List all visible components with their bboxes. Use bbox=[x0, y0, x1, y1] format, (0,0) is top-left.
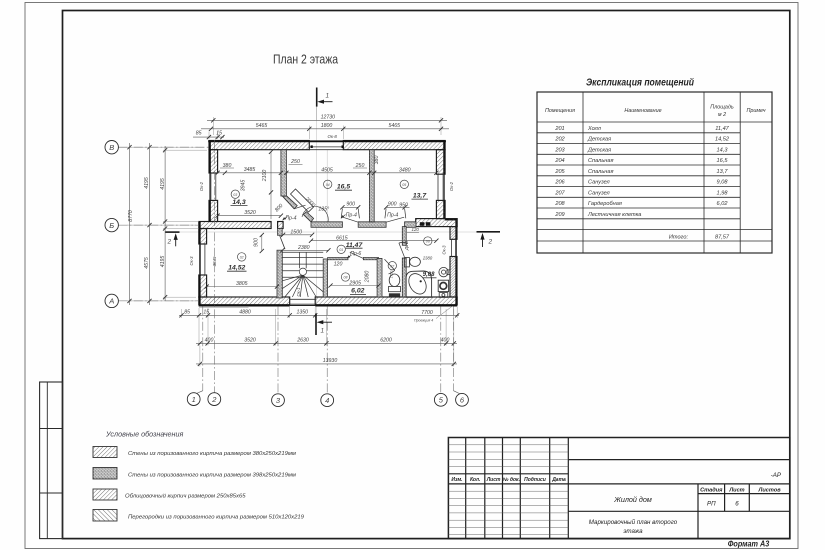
svg-text:План 2 этажа: План 2 этажа bbox=[273, 53, 338, 67]
svg-text:Жилой дом: Жилой дом bbox=[613, 495, 652, 504]
svg-text:В: В bbox=[109, 143, 114, 152]
svg-text:250: 250 bbox=[290, 159, 300, 165]
svg-text:209: 209 bbox=[554, 212, 564, 218]
svg-text:9,08: 9,08 bbox=[717, 180, 729, 186]
svg-text:120: 120 bbox=[334, 262, 343, 268]
svg-text:Спальная: Спальная bbox=[588, 169, 613, 175]
svg-text:400: 400 bbox=[205, 338, 214, 344]
svg-text:Санузел: Санузел bbox=[588, 190, 611, 196]
svg-text:Санузел: Санузел bbox=[588, 180, 611, 186]
svg-text:14,3: 14,3 bbox=[232, 199, 245, 206]
svg-text:Ок-1: Ок-1 bbox=[296, 288, 301, 297]
svg-text:Пр-6: Пр-6 bbox=[350, 251, 361, 257]
svg-text:РП: РП bbox=[707, 501, 716, 508]
svg-text:Подписи: Подписи bbox=[524, 477, 546, 483]
svg-text:02: 02 bbox=[240, 256, 244, 260]
svg-text:2380: 2380 bbox=[422, 255, 433, 260]
svg-text:14,52: 14,52 bbox=[715, 137, 730, 143]
svg-text:5465: 5465 bbox=[256, 123, 268, 129]
svg-text:4575: 4575 bbox=[144, 257, 150, 269]
svg-text:13930: 13930 bbox=[323, 358, 338, 364]
svg-text:135°: 135° bbox=[318, 207, 329, 213]
svg-text:3480: 3480 bbox=[399, 168, 411, 174]
svg-text:1800: 1800 bbox=[321, 123, 333, 129]
svg-text:01: 01 bbox=[339, 248, 343, 252]
svg-text:9,08: 9,08 bbox=[423, 272, 435, 278]
svg-text:3805: 3805 bbox=[236, 281, 248, 287]
svg-text:2905: 2905 bbox=[348, 280, 361, 286]
svg-text:Листов: Листов bbox=[758, 487, 782, 493]
svg-text:4505: 4505 bbox=[321, 168, 333, 174]
svg-text:Помещения: Помещения bbox=[545, 108, 575, 114]
svg-text:15: 15 bbox=[203, 309, 209, 315]
svg-text:06: 06 bbox=[426, 240, 430, 244]
svg-text:2630: 2630 bbox=[296, 338, 309, 344]
svg-text:Дата: Дата bbox=[551, 477, 566, 483]
svg-text:2: 2 bbox=[488, 239, 493, 246]
svg-text:16,5: 16,5 bbox=[717, 158, 729, 164]
svg-text:2: 2 bbox=[211, 395, 217, 404]
svg-text:Б: Б bbox=[109, 221, 114, 230]
svg-text:м 2: м 2 bbox=[718, 112, 726, 118]
svg-text:Условные обозначения: Условные обозначения bbox=[105, 430, 184, 439]
svg-text:5465: 5465 bbox=[389, 123, 401, 129]
svg-text:2: 2 bbox=[167, 239, 172, 246]
svg-text:Перегородки из поризованного к: Перегородки из поризованного кирпича раз… bbox=[128, 515, 305, 521]
svg-text:Стены из поризованного кирпича: Стены из поризованного кирпича размером … bbox=[128, 451, 296, 457]
svg-text:1: 1 bbox=[326, 93, 330, 100]
svg-text:208: 208 bbox=[554, 201, 565, 207]
svg-text:Стены из поризованного кирпича: Стены из поризованного кирпича размером … bbox=[128, 473, 296, 479]
svg-text:Ок-3: Ок-3 bbox=[189, 256, 194, 266]
svg-text:15: 15 bbox=[216, 131, 222, 137]
svg-text:4: 4 bbox=[325, 396, 329, 405]
svg-text:11,47: 11,47 bbox=[715, 126, 729, 132]
svg-text:12730: 12730 bbox=[321, 114, 336, 120]
svg-text:4195: 4195 bbox=[160, 256, 166, 268]
svg-text:1350: 1350 bbox=[297, 309, 309, 315]
svg-text:14,3: 14,3 bbox=[717, 147, 729, 153]
svg-text:Пр-4: Пр-4 bbox=[346, 212, 357, 218]
svg-text:6,02: 6,02 bbox=[717, 201, 729, 207]
svg-text:85: 85 bbox=[184, 309, 190, 315]
svg-text:202: 202 bbox=[554, 137, 565, 143]
svg-text:Экспликация помещений: Экспликация помещений bbox=[586, 78, 695, 89]
svg-text:900: 900 bbox=[388, 201, 397, 207]
svg-text:2100: 2100 bbox=[262, 170, 268, 183]
svg-text:Холл: Холл bbox=[587, 126, 602, 132]
svg-text:900: 900 bbox=[346, 201, 355, 207]
svg-text:85: 85 bbox=[196, 131, 202, 137]
svg-text:Лист: Лист bbox=[486, 477, 501, 483]
svg-text:1,98: 1,98 bbox=[717, 190, 729, 196]
svg-text:Ок-3: Ок-3 bbox=[441, 245, 446, 255]
svg-text:этажа: этажа bbox=[623, 528, 643, 535]
svg-text:Итого:: Итого: bbox=[669, 235, 689, 241]
svg-text:Лестничная клетка: Лестничная клетка bbox=[587, 212, 641, 218]
svg-text:Кол.: Кол. bbox=[470, 477, 480, 483]
svg-text:6,02: 6,02 bbox=[351, 288, 364, 295]
svg-text:205: 205 bbox=[554, 169, 565, 175]
svg-text:Облицовочный кирпич размером 2: Облицовочный кирпич размером 250х85х65 bbox=[125, 493, 246, 500]
svg-text:Дв-6: Дв-6 bbox=[404, 240, 409, 251]
svg-text:Ок-8: Ок-8 bbox=[327, 134, 337, 139]
svg-text:3520: 3520 bbox=[244, 210, 256, 216]
svg-text:7700: 7700 bbox=[421, 310, 433, 316]
svg-text:Маркировочный план второго: Маркировочный план второго bbox=[589, 519, 678, 526]
svg-text:14,52: 14,52 bbox=[228, 264, 245, 271]
svg-text:120: 120 bbox=[412, 227, 420, 232]
svg-text:4195: 4195 bbox=[160, 178, 166, 190]
svg-text:206: 206 bbox=[554, 180, 565, 186]
svg-text:Площадь: Площадь bbox=[710, 105, 734, 111]
svg-text:№ док.: № док. bbox=[503, 477, 520, 483]
svg-text:900: 900 bbox=[253, 238, 259, 247]
svg-text:Ок-2: Ок-2 bbox=[449, 181, 454, 191]
svg-text:380: 380 bbox=[374, 156, 380, 165]
svg-text:Гардеробная: Гардеробная bbox=[588, 201, 622, 207]
svg-text:8770: 8770 bbox=[128, 210, 134, 222]
svg-text:13,7: 13,7 bbox=[717, 169, 729, 175]
svg-text:Изм.: Изм. bbox=[451, 477, 462, 483]
svg-text:16,5: 16,5 bbox=[337, 183, 350, 190]
svg-text:Спальная: Спальная bbox=[588, 158, 613, 164]
svg-text:Наименование: Наименование bbox=[624, 108, 661, 114]
svg-text:-АР: -АР bbox=[771, 472, 782, 479]
svg-text:04: 04 bbox=[326, 183, 330, 187]
svg-text:Ок-2: Ок-2 bbox=[199, 181, 204, 191]
svg-text:6615: 6615 bbox=[336, 236, 348, 242]
svg-text:4195: 4195 bbox=[144, 177, 150, 189]
svg-text:207: 207 bbox=[554, 190, 565, 196]
svg-text:203: 203 bbox=[554, 147, 565, 153]
svg-text:11,47: 11,47 bbox=[346, 242, 364, 249]
svg-text:3945: 3945 bbox=[241, 180, 247, 192]
svg-text:А: А bbox=[108, 297, 114, 306]
svg-text:950: 950 bbox=[399, 202, 408, 208]
svg-text:Лист: Лист bbox=[728, 487, 744, 493]
svg-text:3845: 3845 bbox=[212, 256, 217, 266]
svg-text:1500: 1500 bbox=[290, 229, 302, 235]
svg-text:1: 1 bbox=[321, 328, 325, 335]
svg-text:201: 201 bbox=[554, 126, 564, 132]
svg-text:Проекция 4: Проекция 4 bbox=[414, 319, 433, 323]
svg-text:2380: 2380 bbox=[297, 245, 310, 251]
svg-text:Пр-4: Пр-4 bbox=[285, 216, 296, 222]
svg-text:3485: 3485 bbox=[244, 167, 256, 173]
svg-text:Пр-4: Пр-4 bbox=[387, 212, 398, 218]
svg-text:13,7: 13,7 bbox=[413, 192, 427, 199]
svg-text:4880: 4880 bbox=[239, 309, 251, 315]
svg-text:Примеч: Примеч bbox=[746, 108, 765, 114]
svg-text:Формат А3: Формат А3 bbox=[728, 539, 770, 548]
svg-text:Детская: Детская bbox=[587, 137, 611, 143]
svg-text:Стадия: Стадия bbox=[700, 487, 723, 493]
svg-text:1750: 1750 bbox=[390, 271, 394, 279]
svg-text:400: 400 bbox=[441, 338, 450, 344]
svg-text:204: 204 bbox=[554, 158, 564, 164]
svg-text:Детская: Детская bbox=[587, 147, 611, 153]
svg-text:05: 05 bbox=[402, 183, 406, 187]
svg-text:6200: 6200 bbox=[380, 338, 392, 344]
svg-text:3520: 3520 bbox=[244, 338, 256, 344]
svg-text:08: 08 bbox=[344, 276, 348, 280]
svg-text:2080: 2080 bbox=[365, 271, 371, 284]
svg-text:6: 6 bbox=[735, 501, 739, 508]
svg-text:1: 1 bbox=[192, 395, 196, 404]
svg-text:87,57: 87,57 bbox=[715, 235, 730, 241]
svg-text:03: 03 bbox=[233, 193, 237, 197]
